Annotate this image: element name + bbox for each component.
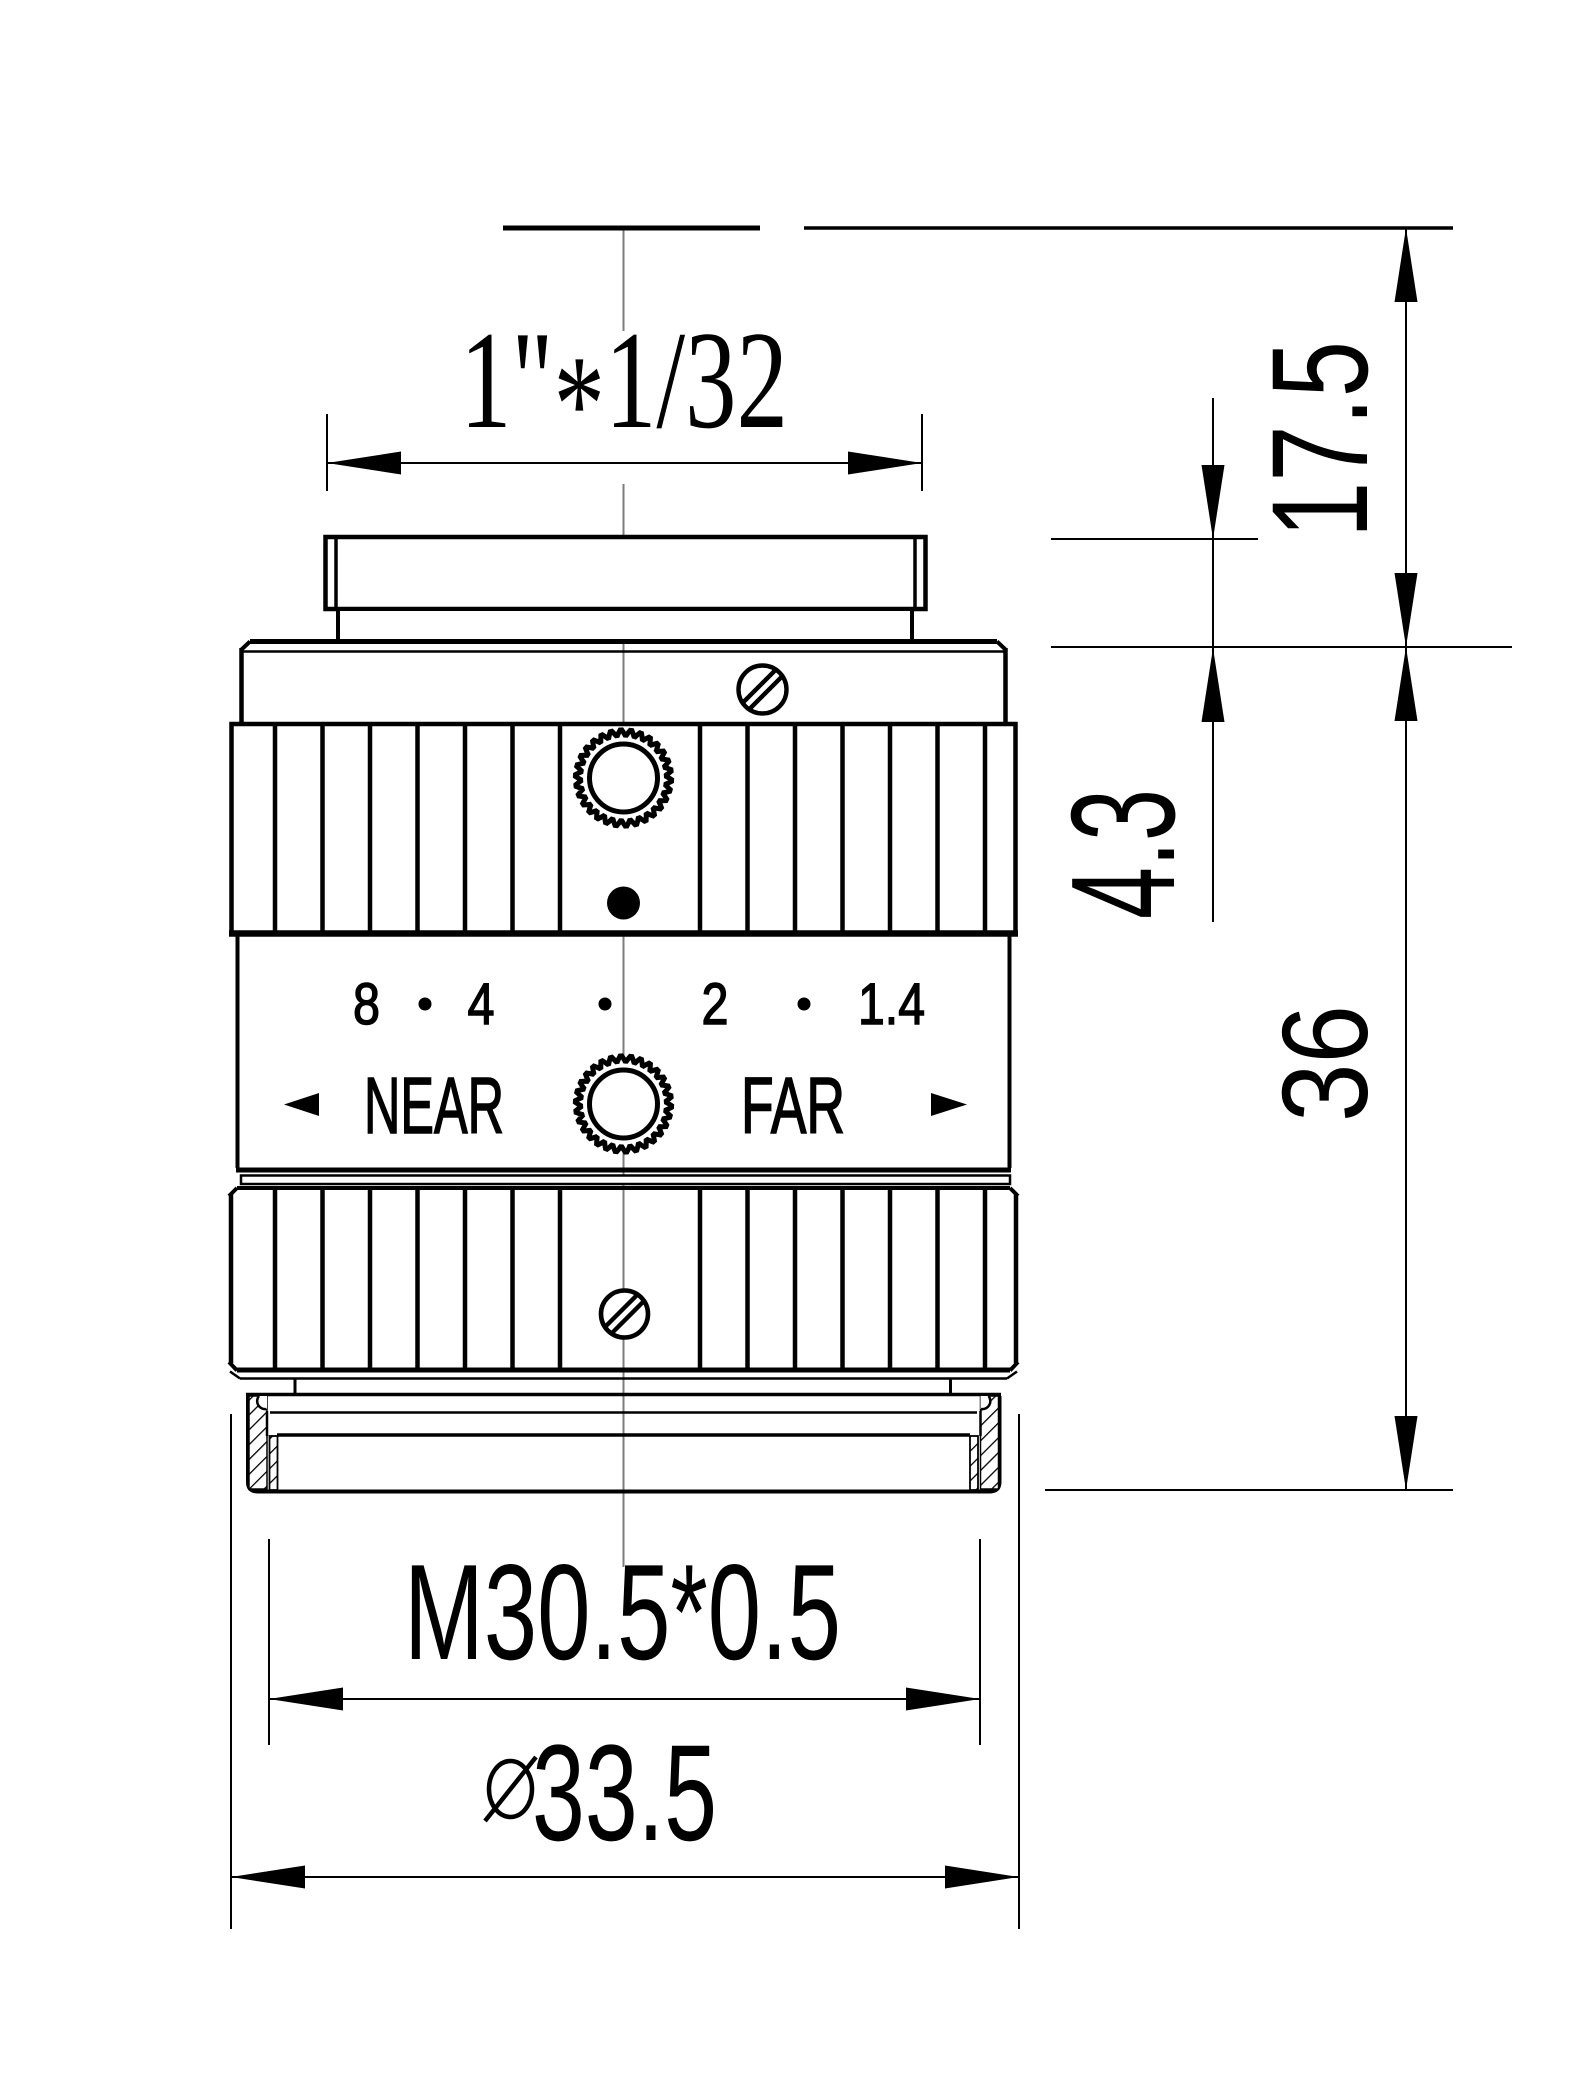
svg-text:1.4: 1.4: [858, 972, 925, 1037]
svg-text:36: 36: [1257, 1005, 1393, 1122]
svg-text:17.5: 17.5: [1244, 341, 1397, 538]
svg-text:FAR: FAR: [741, 1061, 845, 1150]
svg-text:M30.5*0.5: M30.5*0.5: [404, 1536, 841, 1688]
svg-text:8: 8: [353, 972, 380, 1037]
svg-text:4.3: 4.3: [1041, 789, 1206, 919]
svg-text:4: 4: [468, 972, 495, 1037]
svg-text:33.5: 33.5: [532, 1717, 717, 1870]
svg-text:1"*1/32: 1"*1/32: [460, 303, 788, 482]
svg-text:NEAR: NEAR: [364, 1061, 504, 1150]
svg-text:2: 2: [702, 972, 729, 1037]
